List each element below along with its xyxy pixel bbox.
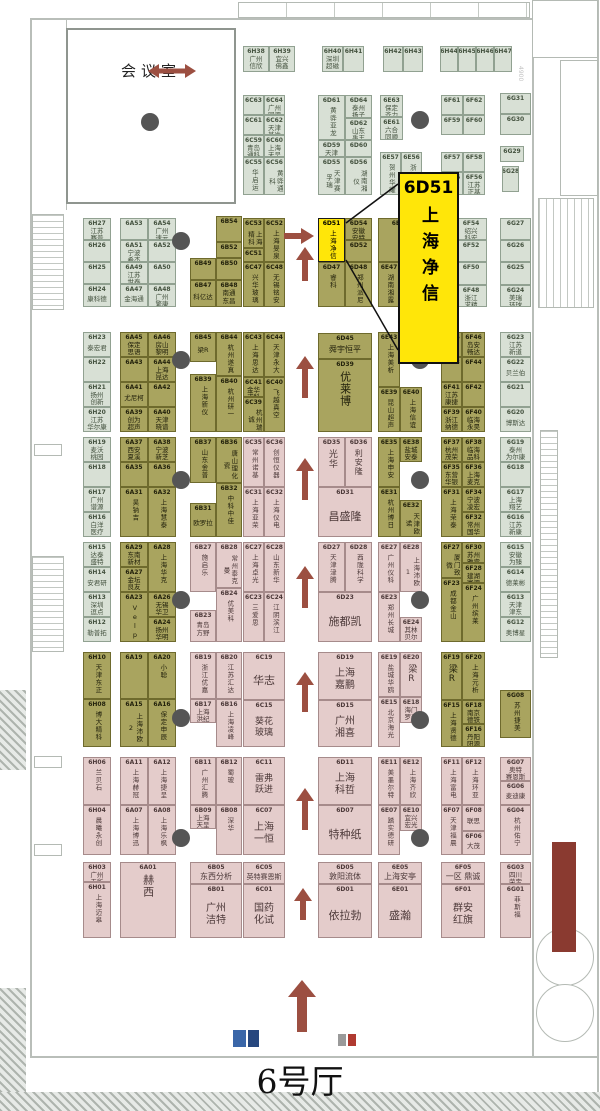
booth-name: 东西分析	[200, 872, 232, 882]
booth-id: 6E27	[381, 544, 398, 552]
booth-name: 上海 天呈	[268, 145, 281, 158]
booth-6H42: 6H42	[383, 46, 403, 72]
booth-name: 上海 昆达	[156, 367, 169, 383]
pillar	[172, 591, 190, 609]
booth-id: 6F52	[463, 242, 480, 250]
booth-6A43: 6A43	[120, 357, 148, 382]
booth-6F61: 6F61	[441, 95, 463, 115]
booth-name: 湖南湘露	[385, 274, 393, 304]
booth-id: 6D60	[350, 142, 368, 150]
booth-6D56: 6D56湖南湘仪	[345, 157, 372, 195]
booth-id: 6C43	[245, 334, 262, 342]
booth-id: 6B27	[194, 544, 211, 552]
booth-id: 6C19	[256, 654, 273, 662]
booth-6F41: 6F41江苏 康捷	[441, 382, 462, 407]
booth-name: 盐城华鸥	[385, 664, 393, 694]
booth-name: 宁波 希杰	[128, 250, 141, 263]
booth-6H46: 6H46	[476, 46, 494, 72]
booth-6F06: 6F06大茂	[462, 831, 485, 855]
booth-6B05: 6B05东西分析	[190, 862, 242, 884]
booth-6F39: 6F39浙江 纳德	[441, 407, 462, 432]
booth-6E12: 6E12上海齐欣	[400, 757, 422, 805]
booth-name: 上海思达	[250, 344, 258, 374]
callout-booth-id: 6D51	[404, 178, 454, 198]
service-desk-icon	[338, 1034, 346, 1046]
booth-6F62: 6F62	[463, 95, 485, 115]
booth-name: 天津东正	[93, 664, 101, 694]
booth-6A49: 6A49江苏 世泰	[120, 262, 148, 284]
booth-6D62: 6D62山东 禹王	[345, 118, 372, 140]
booth-id: 6B20	[220, 654, 237, 662]
booth-6D31: 6D31昌盛隆	[318, 487, 372, 537]
booth-id: 6A08	[153, 807, 170, 815]
booth-id: 6H18	[88, 464, 106, 472]
booth-id: 6E31	[381, 489, 398, 497]
booth-id: 6H42	[384, 48, 402, 56]
direction-arrow	[148, 64, 196, 78]
booth-name: 杭州研一	[225, 388, 233, 418]
booth-name: 上海精科	[246, 230, 262, 248]
booth-name: 浙江 求精	[465, 295, 478, 308]
booth-id: 6B32	[220, 485, 237, 493]
booth-id: 6A31	[125, 489, 142, 497]
booth-6E43: 6E43上海美析	[378, 332, 400, 387]
booth-id: 6A07	[125, 807, 142, 815]
booth-6G30: 6G30	[500, 114, 531, 135]
booth-name: 上海仪电	[271, 499, 279, 529]
booth-name: 上海荣泰	[448, 499, 456, 529]
booth-6B48: 6B48南通 东昌	[216, 280, 242, 307]
booth-6B54: 6B54	[216, 216, 242, 242]
booth-6D15: 6D15广州 湘喜	[318, 700, 372, 747]
booth-id: 6C63	[245, 97, 262, 105]
booth-id: 6E35	[381, 439, 398, 447]
booth-6G03: 6G03四川 荣定	[500, 862, 531, 884]
booth-6B11: 6B11广州汇腾	[190, 757, 216, 805]
booth-name: 白洋 医疗	[91, 522, 104, 538]
direction-arrow	[294, 888, 312, 920]
booth-id: 6F23	[443, 580, 460, 588]
booth-6A50: 6A50	[148, 262, 176, 284]
booth-6F23: 6F23成都金山	[441, 578, 462, 642]
booth-6C39: 6C39杭州瑞诚	[243, 397, 264, 432]
booth-name: 光华	[326, 449, 337, 469]
booth-6A40: 6A40天津 晓谱	[148, 407, 176, 432]
booth-name: 上海 一恒	[254, 822, 274, 846]
booth-name: 上海沛欧1	[403, 554, 419, 592]
hatched-wall	[0, 988, 26, 1092]
booth-name: 杭州 茂荣	[445, 447, 458, 463]
booth-6B08: 6B08深华	[216, 805, 242, 855]
direction-arrow	[284, 228, 314, 244]
booth-id: 6F01	[455, 886, 472, 894]
booth-id: 6H23	[88, 334, 106, 342]
booth-id: 6B36	[220, 439, 237, 447]
booth-name: 江苏 世泰	[128, 272, 141, 285]
booth-6F05: 6F05一区 鼎诚	[441, 862, 485, 884]
booth-6F44: 6F44	[462, 357, 485, 382]
booth-id: 6E39	[381, 389, 398, 397]
booth-6A27: 6A27金坛 良友	[120, 567, 148, 592]
booth-id: 6F20	[465, 654, 482, 662]
booth-name: 广州汇腾	[199, 769, 207, 799]
booth-6B31: 6B31欧罗拉	[190, 503, 216, 537]
booth-6H08: 6H08博大精科	[83, 699, 111, 747]
elevator-icon	[248, 1030, 259, 1047]
booth-name: 昆山超声	[385, 399, 393, 429]
booth-id: 6F07	[443, 807, 460, 815]
booth-id: 6C24	[266, 594, 283, 602]
booth-6H19: 6H19麦沃 桃园	[83, 437, 111, 462]
door	[34, 756, 62, 768]
booth-id: 6C05	[256, 864, 273, 872]
booth-id: 6B52	[220, 244, 237, 252]
booth-name: 江苏 赛普	[91, 228, 104, 241]
booth-id: 6F15	[443, 702, 460, 710]
booth-6E40: 6E40上海信谊	[400, 387, 422, 432]
booth-6B16: 6B16上海凌峰	[216, 699, 242, 747]
booth-name: 天津津腾	[328, 554, 336, 584]
booth-6G26: 6G26	[500, 240, 531, 262]
booth-id: 6C47	[245, 264, 262, 272]
booth-6F50: 6F50	[455, 262, 487, 285]
booth-name: 天津欧诺	[403, 512, 419, 537]
booth-6H06: 6H06兰贝石	[83, 757, 111, 805]
booth-name: 天津 北联	[325, 150, 338, 158]
booth-id: 6H06	[88, 759, 106, 767]
booth-id: 6A23	[125, 594, 142, 602]
booth-id: 6F08	[465, 807, 482, 815]
booth-6E19: 6E19盐城华鸥	[378, 652, 400, 697]
booth-id: 6H01	[88, 884, 106, 892]
booth-6G29: 6G29	[500, 146, 524, 162]
booth-id: 6F44	[465, 359, 482, 367]
booth-id: 6C35	[245, 439, 262, 447]
booth-6B17: 6B17上海 洪纪	[190, 699, 216, 723]
booth-6G18: 6G18	[500, 462, 531, 487]
booth-id: 6F62	[466, 97, 483, 105]
booth-6H10: 6H10天津东正	[83, 652, 111, 699]
booth-6A42: 6A42	[148, 382, 176, 407]
booth-id: 6H46	[476, 48, 494, 56]
booth-id: 6G12	[507, 619, 524, 627]
booth-name: Velp	[130, 604, 138, 640]
pillar	[141, 113, 159, 131]
booth-name: 上海乐枫	[158, 817, 166, 847]
booth-id: 6F05	[455, 864, 472, 872]
booth-id: 6E11	[381, 759, 398, 767]
booth-6D64: 6D64泰州 扬子	[345, 95, 372, 118]
booth-name: 无锡 华卫	[156, 602, 169, 618]
booth-name: 菲斯福	[512, 896, 520, 919]
booth-name: 科亿达	[193, 294, 213, 302]
booth-name: 金华 诺科	[247, 387, 260, 398]
booth-6G22: 6G22贝兰伯	[500, 357, 531, 382]
pillar	[172, 471, 190, 489]
exhibition-floor-plan: 会议室 6H38广州 信欣6H39宜兴 佛鑫6H40深圳 超磁6H416H426…	[0, 0, 600, 1111]
booth-6H43: 6H43	[403, 46, 423, 72]
booth-6F16: 6F16丹阳 阳源	[462, 724, 485, 747]
booth-id: 6H24	[88, 286, 106, 294]
booth-6F48: 6F48浙江 求精	[455, 285, 487, 307]
booth-name: 创恒仪器	[271, 449, 279, 479]
booth-id: 6A20	[153, 654, 170, 662]
booth-name: 梁R	[197, 347, 208, 355]
booth-name: 其林 贝尔	[405, 627, 418, 643]
booth-id: 6B54	[220, 218, 237, 226]
booth-name: 利安隆	[354, 449, 364, 476]
corner-room	[532, 0, 598, 58]
booth-6C05: 6C05英特赛恩斯	[243, 862, 285, 884]
booth-6F20: 6F20上海元析	[462, 652, 485, 700]
booth-6A46: 6A46房山 黎明	[148, 332, 176, 357]
booth-6B40: 6B40杭州研一	[216, 376, 242, 432]
booth-name: 常州诺基	[250, 449, 258, 479]
booth-name: 上海捷呈	[158, 769, 166, 799]
booth-6G08: 6G08苏州捷美	[500, 690, 531, 738]
booth-id: 6B31	[194, 505, 211, 513]
door	[34, 844, 62, 856]
booth-name: 成都金山	[448, 590, 456, 620]
booth-6H17: 6H17广州 谱源	[83, 487, 111, 512]
direction-arrow	[296, 788, 314, 830]
booth-6F32: 6F32常州 国华	[462, 512, 485, 537]
booth-6G13: 6G13天津 津东	[500, 592, 531, 617]
booth-name: 浙江 纳德	[445, 417, 458, 433]
booth-name: 创为 超声	[128, 417, 141, 433]
booth-6C52: 6C52上海旻泉	[264, 218, 285, 262]
booth-6C40: 6C40飞越真空	[264, 377, 285, 432]
booth-id: 6D35	[323, 439, 341, 447]
booth-name: 美墨尔特	[385, 769, 393, 799]
booth-6F60: 6F60	[463, 115, 485, 135]
booth-6H12: 6H12勒普拓	[83, 617, 111, 642]
booth-name: 苏州捷美	[512, 702, 520, 732]
booth-id: 6F31	[443, 489, 460, 497]
booth-id: 6A43	[125, 359, 142, 367]
booth-name: 联思	[467, 818, 480, 826]
booth-6A23: 6A23Velp	[120, 592, 148, 642]
booth-6B44: 6B44杭州遂真	[216, 332, 242, 376]
booth-id: 6F57	[444, 154, 461, 162]
booth-6D60: 6D60	[345, 140, 372, 157]
booth-name: 丹阳 阳源	[467, 734, 480, 748]
booth-id: 6H47	[494, 48, 512, 56]
booth-id: 6C31	[245, 489, 262, 497]
booth-id: 6B08	[220, 807, 237, 815]
booth-id: 6B01	[207, 886, 224, 894]
booth-6C56: 6C56黄骅通科	[264, 157, 285, 195]
booth-id: 6H08	[88, 701, 106, 709]
booth-id: 6A53	[125, 220, 142, 228]
booth-id: 6F24	[465, 585, 482, 593]
booth-id: 6F12	[465, 759, 482, 767]
booth-id: 6D36	[350, 439, 368, 447]
booth-name: 小聪	[158, 664, 166, 679]
booth-6F27: 6F27厦门致微	[441, 542, 462, 578]
booth-name: 江苏 华尔康	[87, 417, 107, 433]
booth-6C55: 6C55华启运	[243, 157, 264, 195]
booth-6H45: 6H45	[458, 46, 476, 72]
booth-name: 上海环亚	[470, 769, 478, 799]
stairs	[32, 556, 64, 652]
booth-name: 广州 五所	[91, 872, 104, 883]
booth-6H22: 6H22	[83, 357, 111, 382]
booth-6C19: 6C19华志	[243, 652, 285, 700]
booth-id: 6C53	[245, 220, 262, 228]
booth-id: 6C55	[245, 159, 262, 167]
booth-name: 盐城 安泰	[405, 447, 418, 463]
booth-6F19: 6F19梁R	[441, 652, 462, 700]
booth-6H21: 6H21扬州 创新	[83, 382, 111, 407]
booth-id: 6F50	[463, 264, 480, 272]
booth-name: 葵花 玻璃	[255, 717, 273, 739]
booth-name: 大茂	[467, 843, 480, 851]
booth-6F52: 6F52	[455, 240, 487, 262]
booth-id: 6F59	[444, 117, 461, 125]
booth-id: 6G26	[507, 242, 524, 250]
booth-name: 雷弗 跃进	[255, 774, 273, 796]
booth-6C01: 6C01国药 化试	[243, 884, 285, 938]
booth-6E38: 6E38盐城 安泰	[400, 437, 422, 462]
booth-6F56: 6F56江苏 正基	[463, 172, 485, 195]
booth-6C41: 6C41金华 诺科	[243, 377, 264, 397]
booth-name: 华启运	[250, 169, 258, 192]
booth-id: 6C48	[266, 264, 283, 272]
booth-6D39: 6D39优莱博	[318, 359, 372, 432]
wall	[30, 18, 598, 20]
booth-name: 建湖 富源	[467, 573, 480, 584]
booth-name: 广州 湘喜	[335, 716, 355, 740]
booth-6D47: 6D47睿科	[318, 262, 345, 307]
booth-id: 6H25	[88, 264, 106, 272]
booth-id: 6B05	[207, 864, 224, 872]
booth-6D19: 6D19上海 嘉鹏	[318, 652, 372, 700]
booth-id: 6D28	[350, 544, 368, 552]
booth-name: 康科德	[87, 296, 107, 304]
booth-id: 6G25	[507, 264, 524, 272]
booth-6E32: 6E32天津欧诺	[400, 500, 422, 537]
booth-6G15: 6G15安徽 为臻	[500, 542, 531, 567]
booth-6B09: 6B09上海 天呈	[190, 805, 216, 829]
booth-id: 6A15	[125, 701, 142, 709]
booth-name: 安徽 安特	[352, 228, 365, 241]
booth-6C27: 6C27上海卓光	[243, 542, 264, 592]
booth-name: 广州 信欣	[250, 56, 263, 72]
booth-6B36: 6B36唐山理化瓷	[216, 437, 242, 483]
booth-6G06: 6G06麦迪康	[500, 781, 531, 805]
booth-name: 江苏 新康	[509, 522, 522, 538]
booth-6C60: 6C60上海 天呈	[264, 135, 285, 157]
booth-6G16: 6G16江苏 新康	[500, 512, 531, 537]
booth-6B52: 6B52	[216, 242, 242, 258]
booth-6F40: 6F40临海 永昊	[462, 407, 485, 432]
booth-id: 6C61	[245, 117, 262, 125]
booth-name: 睿科	[328, 274, 336, 289]
booth-name: 东营 华银	[445, 472, 458, 488]
door	[34, 444, 62, 456]
booth-6C11: 6C11雷弗 跃进	[243, 757, 285, 805]
booth-name: 青岛 通科	[247, 145, 260, 158]
booth-name: 杭州瑞诚	[246, 409, 262, 432]
booth-id: 6E32	[403, 502, 420, 510]
pillar	[411, 591, 429, 609]
booth-name: 保定 思语	[128, 342, 141, 358]
booth-name: 上海富电	[448, 769, 456, 799]
booth-id: 6G18	[507, 464, 524, 472]
pillar	[172, 829, 190, 847]
booth-id: 6B28	[220, 544, 237, 552]
booth-callout: 6D51 上海净信	[398, 172, 459, 364]
booth-id: 6C27	[245, 544, 262, 552]
booth-6B24: 6B24优美科	[216, 588, 242, 642]
booth-name: 蜀玻	[225, 769, 233, 784]
direction-arrow	[296, 356, 314, 398]
booth-6C44: 6C44天津永大	[264, 332, 285, 377]
booth-6B47: 6B47科亿达	[190, 280, 216, 307]
booth-name: 特种纸	[329, 828, 362, 841]
booth-6H40: 6H40深圳 超磁	[322, 46, 343, 72]
booth-name: 广州 谱源	[91, 497, 104, 513]
booth-6G07: 6G07奥特 赛恩斯	[500, 757, 531, 781]
booth-6C51: 6C51	[243, 248, 264, 262]
booth-name: 华志	[253, 674, 275, 687]
booth-id: 6G20	[507, 409, 524, 417]
booth-6G17: 6G17上海 翔艺	[500, 487, 531, 512]
booth-name: 优美科	[225, 600, 233, 623]
booth-name: 上海新仪	[199, 386, 207, 416]
booth-name: 北京海光	[385, 709, 393, 739]
booth-name: 晨曦永创	[93, 817, 101, 847]
booth-6A12: 6A12上海捷呈	[148, 757, 176, 805]
booth-name: 天津永大	[271, 344, 279, 374]
booth-id: 6A41	[125, 384, 142, 392]
booth-name: 江苏 正基	[468, 182, 481, 196]
booth-6H20: 6H20江苏 华尔康	[83, 407, 111, 432]
booth-6A32: 6A32上海慧泰	[148, 487, 176, 537]
booth-id: 6E15	[381, 699, 398, 707]
escalator	[538, 198, 594, 308]
booth-id: 6C39	[245, 399, 262, 407]
booth-6C61: 6C61	[243, 115, 264, 135]
booth-6F59: 6F59	[441, 115, 463, 135]
booth-id: 6B37	[194, 439, 211, 447]
booth-6H15: 6H15达泰 盛特	[83, 542, 111, 567]
booth-id: 6B49	[194, 260, 211, 268]
booth-name: 上海元析	[470, 664, 478, 694]
booth-id: 6B16	[220, 701, 237, 709]
booth-6G21: 6G21	[500, 382, 531, 407]
booth-name: 广州 速元	[156, 228, 169, 241]
booth-id: 6E56	[403, 154, 420, 162]
booth-name: 天津福晨	[448, 817, 456, 847]
booth-6A11: 6A11上海赫冠	[120, 757, 148, 805]
booth-id: 6F11	[443, 759, 460, 767]
booth-6E10: 6E10宜兴 宏光	[400, 805, 422, 831]
booth-6E31: 6E31杭州博日	[378, 487, 400, 537]
booth-id: 6F60	[466, 117, 483, 125]
booth-6D59: 6D59天津 北联	[318, 140, 345, 157]
booth-id: 6C51	[245, 250, 262, 258]
booth-name: 上海信谊	[407, 399, 415, 429]
booth-6D01: 6D01依拉勃	[318, 884, 372, 938]
booth-6H44: 6H44	[440, 46, 458, 72]
booth-6D51: 6D51上海净信	[318, 218, 345, 262]
booth-id: 6D19	[336, 654, 354, 662]
booth-6A20: 6A20小聪	[148, 652, 176, 699]
booth-id: 6A35	[125, 464, 142, 472]
booth-6E27: 6E27广州仪科	[378, 542, 400, 592]
